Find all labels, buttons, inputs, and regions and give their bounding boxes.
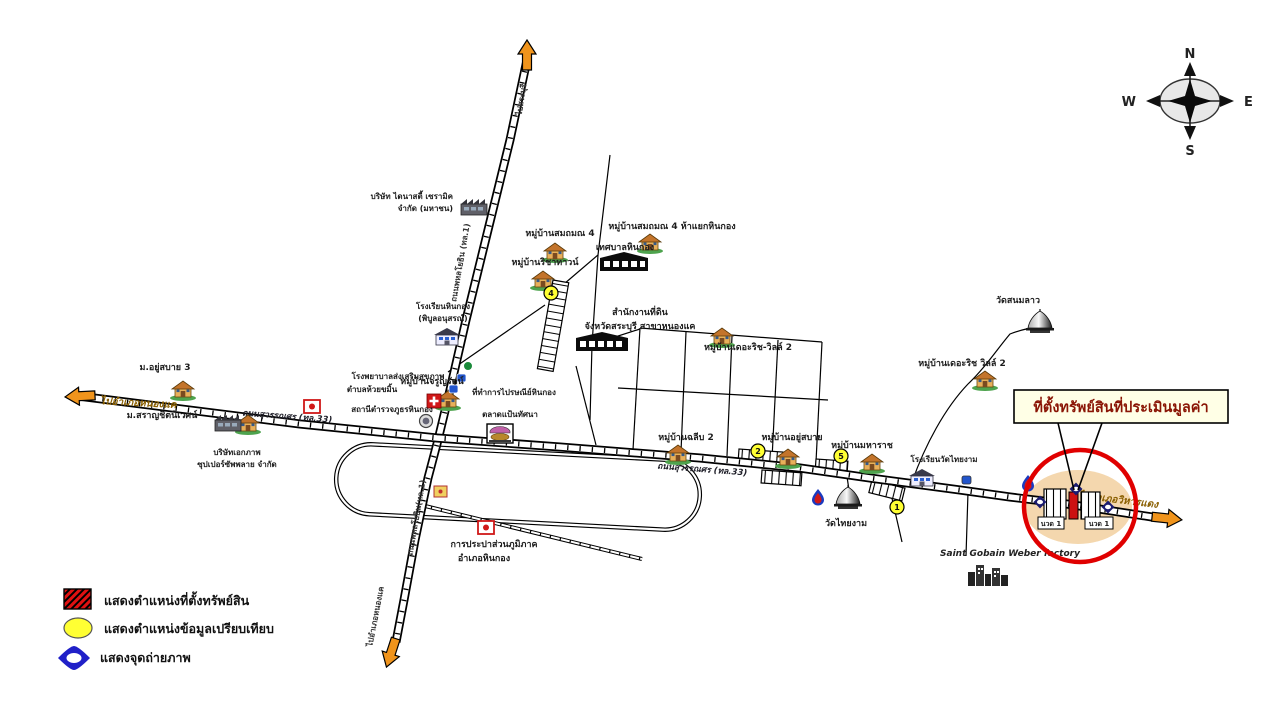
house-icon bbox=[170, 381, 196, 401]
label-health-center2: ตำบลห้วยขมิ้น bbox=[347, 383, 398, 394]
school-icon bbox=[434, 328, 460, 345]
direction-arrows: ไปอำเภอหนองแค ไปอำเภอวิหารแดง ไปสระบุรี … bbox=[65, 40, 1183, 670]
map-canvas: ถนนสุวรรณศร (ทล.33) ถนนสุวรรณศร (ทล.33) … bbox=[0, 0, 1280, 720]
direction-label-west: ไปอำเภอหนองแค bbox=[100, 394, 178, 411]
label-police-station: สถานีตำรวจภูธรหินกอง bbox=[351, 404, 433, 415]
compass-label-w: W bbox=[1122, 95, 1136, 110]
road-label-phahonyothin-north: ถนนพหลโยธิน (ทล.1) bbox=[448, 222, 472, 302]
label-village-yusabai3: ม.อยู่สบาย 3 bbox=[140, 362, 191, 373]
property-plot-hatched bbox=[1044, 489, 1066, 519]
waterworks-icon bbox=[478, 521, 494, 534]
label-wat-sanomlao: วัดสนมลาว bbox=[996, 295, 1040, 306]
shrine-icon bbox=[434, 486, 447, 497]
compass-east-pointer bbox=[1220, 95, 1234, 107]
location-map: ถนนสุวรรณศร (ทล.33) ถนนสุวรรณศร (ทล.33) … bbox=[0, 0, 1280, 720]
minor-roads bbox=[448, 155, 1038, 556]
compass-north-pointer bbox=[1184, 62, 1196, 76]
label-dynasty: บริษัท ไดนาสตี้ เซรามิค bbox=[371, 190, 453, 201]
comparison-points: 4 2 5 1 bbox=[544, 286, 904, 514]
label-village-sommon4b: หมู่บ้านสมถมณ 4 ห้าแยกหินกอง bbox=[608, 221, 735, 232]
legend-photo-label: แสดงจุดถ่ายภาพ bbox=[100, 650, 191, 666]
direction-label-south: ไปอำเภอหนองแค bbox=[364, 585, 386, 648]
north-arrow-icon bbox=[518, 40, 536, 70]
label-dynasty2: จำกัด (มหาชน) bbox=[398, 204, 453, 213]
market-icon bbox=[487, 424, 513, 443]
factory-icon bbox=[461, 199, 487, 215]
label-village-richatown: หมู่บ้านริชาทาวน์ bbox=[512, 256, 580, 268]
label-ekkaphap: บริษัทเอกภาพ bbox=[213, 448, 260, 457]
landmark-labels: บริษัท ไดนาสตี้ เซรามิค จำกัด (มหาชน) หม… bbox=[127, 190, 1081, 564]
gas-station-icon bbox=[812, 489, 824, 506]
label-waterworks2: อำเภอหินกอง bbox=[458, 553, 510, 564]
label-land-office: สำนักงานที่ดิน bbox=[612, 305, 669, 318]
label-hinkong-school2: (พิบูลอนุสรณ์) bbox=[418, 313, 467, 324]
compass-label-n: N bbox=[1185, 47, 1196, 62]
compass-label-e: E bbox=[1244, 95, 1253, 110]
comparison-point: 2 bbox=[751, 444, 765, 458]
label-village-therich2: หมู่บ้านเดอะริช-วิลล์ 2 bbox=[704, 341, 792, 353]
label-waterworks: การประปาส่วนภูมิภาค bbox=[450, 539, 537, 550]
label-wat-thaingam: วัดไทยงาม bbox=[825, 517, 867, 529]
legend-comparison-label: แสดงตำแหน่งข้อมูลเปรียบเทียบ bbox=[104, 621, 274, 637]
house-icon bbox=[972, 371, 998, 391]
label-thaingam-school: โรงเรียนวัดไทยงาม bbox=[909, 454, 977, 464]
legend-photo-icon bbox=[58, 646, 90, 670]
compass-rose: N S W E bbox=[1122, 47, 1253, 159]
label-health-center: โรงพยาบาลส่งเสริมสุขภาพ bbox=[351, 371, 445, 382]
label-land-office2: จังหวัดสระบุรี สาขาหนองแค bbox=[585, 321, 696, 332]
south-arrow-icon bbox=[378, 636, 404, 670]
road-waterworks bbox=[421, 505, 642, 559]
plot-label-right: นวด 1 bbox=[1089, 520, 1110, 528]
plot-label-left: นวด 1 bbox=[1041, 520, 1062, 528]
comparison-point: 5 bbox=[834, 449, 848, 463]
temple-icon bbox=[834, 485, 862, 509]
legend: แสดงตำแหน่งที่ตั้งทรัพย์สิน แสดงตำแหน่งข… bbox=[58, 589, 274, 670]
school-icon bbox=[909, 469, 935, 486]
house-icon bbox=[859, 454, 885, 474]
label-village-yusabai: หมู่บ้านอยู่สบาย bbox=[762, 432, 823, 443]
compass-label-s: S bbox=[1185, 144, 1194, 159]
city-buildings-icon bbox=[968, 565, 1008, 586]
label-ekkaphap2: ซุปเปอร์ซัพพลาย จำกัด bbox=[197, 459, 276, 470]
property-plot-red bbox=[1069, 492, 1078, 519]
comparison-point-number: 2 bbox=[755, 447, 761, 456]
comparison-point-number: 5 bbox=[838, 452, 844, 461]
compass-south-pointer bbox=[1184, 126, 1196, 140]
sign-icon bbox=[464, 362, 473, 371]
post-office-icon bbox=[304, 400, 320, 413]
label-village-saranchit: ม.สราญชิตนิเวศน์ bbox=[127, 409, 198, 421]
legend-property-icon bbox=[64, 589, 91, 609]
comparison-point: 4 bbox=[544, 286, 558, 300]
east-arrow-icon bbox=[1151, 508, 1183, 529]
label-village-chalip2: หมู่บ้านฉลีบ 2 bbox=[658, 432, 714, 443]
label-post-office: ที่ทำการไปรษณีย์หินกอง bbox=[472, 386, 556, 397]
label-village-sommon4: หมู่บ้านสมถมณ 4 bbox=[525, 228, 594, 239]
comparison-point-number: 1 bbox=[894, 503, 900, 512]
temple-icon bbox=[1026, 309, 1054, 333]
comparison-point: 1 bbox=[890, 500, 904, 514]
municipality-building-icon bbox=[600, 252, 648, 271]
label-market: ตลาดแป้นทัศนา bbox=[482, 409, 538, 419]
legend-property-label: แสดงตำแหน่งที่ตั้งทรัพย์สิน bbox=[104, 591, 250, 608]
compass-west-pointer bbox=[1146, 95, 1160, 107]
label-hinkong-school: โรงเรียนหินกอง bbox=[415, 301, 470, 311]
label-village-therich2b: หมู่บ้านเดอะริช วิลล์ 2 bbox=[918, 357, 1006, 369]
legend-comparison-icon bbox=[64, 618, 92, 638]
property-plot-hatched bbox=[1081, 492, 1100, 519]
comparison-point-number: 4 bbox=[548, 289, 554, 298]
west-arrow-icon bbox=[65, 386, 96, 406]
sign-icon bbox=[962, 476, 971, 484]
label-municipality: เทศบาลหินกอง bbox=[596, 242, 654, 253]
police-badge-icon bbox=[420, 415, 433, 428]
